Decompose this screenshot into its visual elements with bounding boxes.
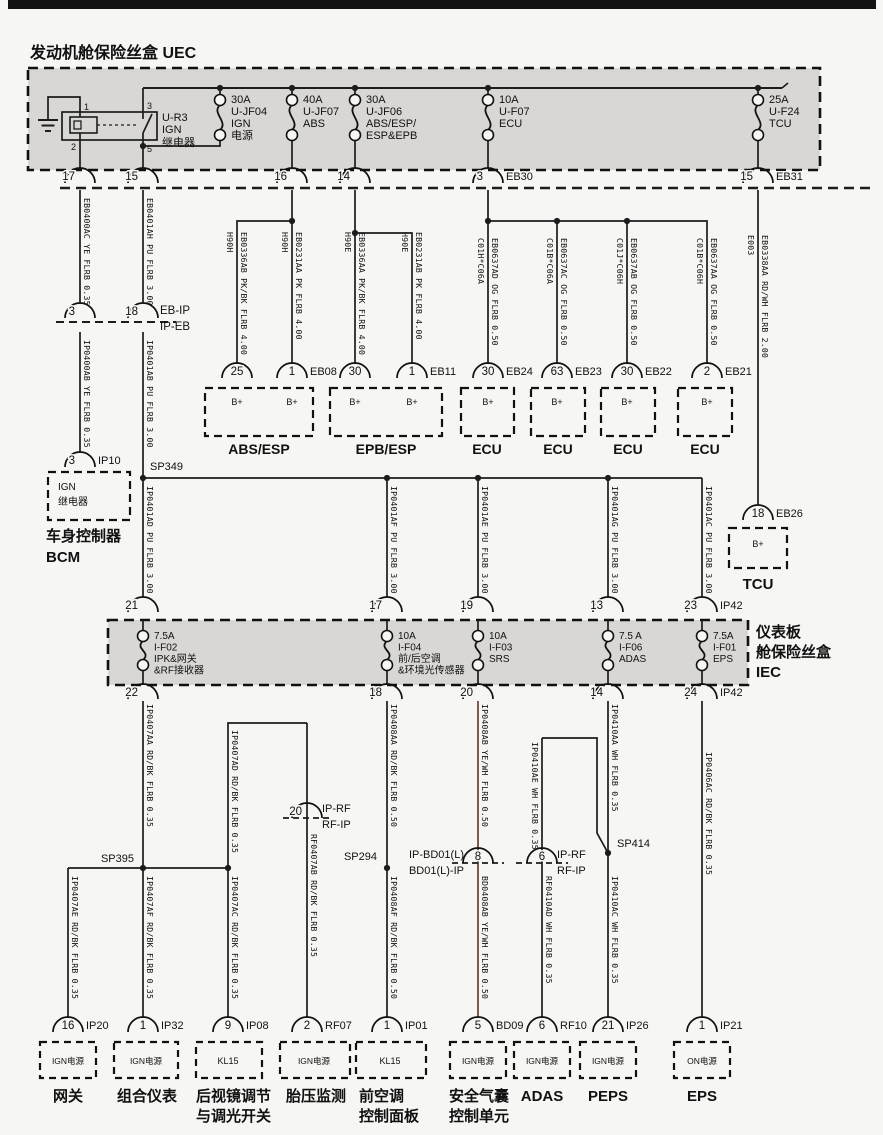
wire-code-label: EB0336AB PK/BK FLRB 4.00 — [239, 232, 249, 355]
connector-EB21: 2EB21 — [692, 363, 752, 378]
connector-EB26: 18EB26 — [743, 505, 803, 520]
wire-code-label: H90E — [343, 232, 353, 253]
wire-code-label: EB0231AA PK FLRB 4.00 — [294, 232, 304, 340]
harness-label: IP26 — [626, 1020, 649, 1032]
pin-number: 6 — [539, 851, 545, 863]
pin-number: 15 — [125, 171, 138, 183]
wire-code-label: IP0400AB YE FLRB 0.35 — [82, 340, 92, 448]
connector-EB31: 15EB31 — [740, 168, 803, 183]
tpms-inner: IGN电源 — [298, 1056, 331, 1066]
pin-number: 20 — [460, 687, 473, 699]
fuse-label: U-F07 — [499, 106, 530, 118]
wire-code-label: C01H*C06A — [476, 238, 486, 284]
harness-label: IP01 — [405, 1020, 428, 1032]
bplus: B+ — [621, 397, 632, 407]
relay-pin1: 1 — [84, 102, 89, 112]
pin-number: 17 — [369, 600, 382, 612]
abs-esp-box — [205, 388, 313, 436]
harness-label: BD09 — [496, 1020, 524, 1032]
pin-number: 24 — [684, 687, 697, 699]
fuse-label: &环境光传感器 — [398, 664, 465, 677]
fuse-label: 前/后空调 — [398, 652, 441, 665]
wire-code-label: IP0406AC RD/BK FLRB 0.35 — [704, 752, 714, 875]
wire-code-label: IP0407AD RD/BK FLRB 0.35 — [230, 730, 240, 853]
relay-pin5: 5 — [147, 144, 152, 154]
harness-label: EB24 — [506, 366, 533, 378]
fuse-label: &RF接收器 — [154, 664, 204, 677]
fuse-terminal — [603, 631, 614, 642]
mirror-caption2: 与调光开关 — [196, 1107, 271, 1125]
wire-code-label: C01B*C06H — [695, 238, 705, 284]
ac-caption1: 前空调 — [359, 1087, 404, 1105]
pin-number: 3 — [69, 306, 75, 318]
wire-code-label: EB0637AB OG FLRB 0.50 — [629, 238, 639, 346]
fuse-terminal — [473, 631, 484, 642]
wiring-diagram-page: 30AU-JF04IGN电源40AU-JF07ABS30AU-JF06ABS/E… — [0, 0, 883, 1135]
pin-number: 9 — [225, 1020, 231, 1032]
fuse-label: SRS — [489, 654, 510, 665]
pin-number: 6 — [539, 1020, 545, 1032]
wire-code-label: E003 — [746, 235, 756, 256]
wire-code-label: IP0401AC PU FLRB 3.00 — [704, 486, 714, 594]
connector-IP42: 23IP42 — [684, 597, 742, 612]
fuse-terminal — [287, 95, 298, 106]
fuse-label: 40A — [303, 94, 323, 106]
wire-code-label: IP0407AE RD/BK FLRB 0.35 — [70, 876, 80, 999]
fuse-label: 10A — [499, 94, 519, 106]
iprf20-label2: RF-IP — [322, 819, 351, 831]
connector-19: 19 — [460, 597, 493, 612]
wire-ip0410ae-branch — [542, 738, 608, 853]
mirror-caption1: 后视镜调节 — [196, 1087, 271, 1105]
pin-number: 1 — [384, 1020, 390, 1032]
wire-code-label: C01B*C06A — [545, 238, 555, 284]
pin-number: 1 — [699, 1020, 705, 1032]
iec-caption1: 仪表板 — [755, 623, 802, 641]
harness-label: IP32 — [161, 1020, 184, 1032]
junction-dot — [624, 218, 630, 224]
connector-RF10: 6RF10 — [527, 1017, 587, 1032]
bplus: B+ — [752, 539, 763, 549]
bplus: B+ — [551, 397, 562, 407]
junction-dot — [485, 85, 491, 91]
fuse-label: 7.5A — [154, 631, 175, 642]
bcm-caption1: 车身控制器 — [46, 527, 122, 545]
pin-number: 3 — [69, 455, 75, 467]
iprf6-label2: RF-IP — [557, 865, 586, 877]
connector-IP20: 16IP20 — [53, 1017, 109, 1032]
fuse-terminal — [215, 95, 226, 106]
pin-number: 2 — [704, 366, 710, 378]
bplus: B+ — [406, 397, 417, 407]
fuse-label: I-F02 — [154, 643, 178, 654]
adas-caption: ADAS — [521, 1088, 564, 1105]
wire-code-label: H90E — [400, 232, 410, 253]
connector-IP32: 1IP32 — [128, 1017, 184, 1032]
bd01-label2: BD01(L)-IP — [409, 865, 464, 877]
wire-code-label: EB0338AA RD/WH FLRB 2.00 — [760, 235, 770, 358]
gateway-caption: 网关 — [53, 1087, 83, 1105]
wire-code-label: IP0401AE PU FLRB 3.00 — [480, 486, 490, 594]
fuse-label: TCU — [769, 118, 792, 130]
sp349-label: SP349 — [150, 461, 183, 473]
tcu-caption: TCU — [743, 576, 774, 593]
wire-code-label: C01J*C06H — [615, 238, 625, 284]
eps-caption: EPS — [687, 1088, 717, 1105]
fuse-label: 25A — [769, 94, 789, 106]
wire-code-label: IP0407AA RD/BK FLRB 0.35 — [145, 704, 155, 827]
epb-esp-caption: EPB/ESP — [356, 441, 417, 457]
connector-30: 30 — [340, 363, 370, 378]
harness-label: IP10 — [98, 455, 121, 467]
wire-code-label: H90H — [225, 232, 235, 253]
pin-number: 5 — [475, 1020, 481, 1032]
harness-label: RF10 — [560, 1020, 587, 1032]
wire-code-label: EB0637AD OG FLRB 0.50 — [490, 238, 500, 346]
pin-number: 1 — [409, 366, 415, 378]
junction-dot — [605, 850, 611, 856]
pin-number: 14 — [590, 687, 603, 699]
sp414-label: SP414 — [617, 838, 650, 850]
pin-number: 63 — [551, 366, 564, 378]
pin-number: 30 — [349, 366, 362, 378]
ecu-caption: ECU — [690, 441, 720, 457]
wire-code-label: IP0407AF RD/BK FLRB 0.35 — [145, 876, 155, 999]
ac-inner: KL15 — [379, 1056, 400, 1066]
fuse-label: I-F04 — [398, 643, 422, 654]
bplus: B+ — [701, 397, 712, 407]
fuse-label: ECU — [499, 118, 522, 130]
pin-number: 1 — [140, 1020, 146, 1032]
fuse-terminal — [483, 95, 494, 106]
fuse-label: U-JF04 — [231, 106, 267, 118]
wire-code-label: IP0410AC WH FLRB 0.35 — [610, 876, 620, 984]
ecu-box-4 — [678, 388, 732, 436]
wire-code-label: EB0231AB PK FLRB 4.00 — [414, 232, 424, 340]
fuse-terminal — [483, 130, 494, 141]
harness-label: RF07 — [325, 1020, 352, 1032]
harness-label: IP42 — [720, 600, 743, 612]
connector-EB11: 1EB11 — [397, 363, 456, 378]
connector-EB24: 30EB24 — [473, 363, 533, 378]
airbag-inner: IGN电源 — [462, 1056, 495, 1066]
cluster-caption: 组合仪表 — [117, 1087, 178, 1105]
fuse-label: 30A — [366, 94, 386, 106]
harness-label: IP21 — [720, 1020, 743, 1032]
junction-dot — [554, 218, 560, 224]
relay-pin2: 2 — [71, 142, 76, 152]
fuse-terminal — [350, 95, 361, 106]
pin-number: 16 — [62, 1020, 75, 1032]
relay-name3: 继电器 — [162, 136, 195, 149]
abs-esp-caption: ABS/ESP — [228, 441, 289, 457]
junction-dot — [384, 865, 390, 871]
adas-inner: IGN电源 — [526, 1056, 559, 1066]
fuse-terminal — [350, 130, 361, 141]
connector-IP01: 1IP01 — [372, 1017, 428, 1032]
ecu-caption: ECU — [543, 441, 573, 457]
relay-name: U-R3 — [162, 112, 188, 124]
fuse-terminal — [603, 660, 614, 671]
iec-caption2: 舱保险丝盒 — [756, 643, 832, 661]
wire-code-label: RF0410AD WH FLRB 0.35 — [544, 876, 554, 984]
harness-label: EB23 — [575, 366, 602, 378]
relay-name2: IGN — [162, 124, 182, 136]
fuse-terminal — [287, 130, 298, 141]
wire-code-label: EB0637AA OG FLRB 0.50 — [709, 238, 719, 346]
cluster-inner: IGN电源 — [130, 1056, 163, 1066]
pin-number: 15 — [740, 171, 753, 183]
connector-21: 21 — [125, 597, 158, 612]
ecu-box-3 — [601, 388, 655, 436]
harness-label: EB11 — [430, 366, 456, 378]
fuse-label: U-JF07 — [303, 106, 339, 118]
pin-number: 1 — [289, 366, 295, 378]
fuse-label: IPK&网关 — [154, 652, 197, 665]
wire-code-label: IP0410AA WH FLRB 0.35 — [610, 704, 620, 812]
connector-6: 6 — [527, 848, 557, 863]
harness-label: EB08 — [310, 366, 337, 378]
connector-EB23: 63EB23 — [542, 363, 602, 378]
fuse-label: ESP&EPB — [366, 130, 417, 142]
connector-EB30: 3EB30 — [473, 168, 533, 183]
junction-dot — [217, 85, 223, 91]
wire-code-label: IP0408AB YE/WH FLRB 0.50 — [480, 704, 490, 827]
junction-dot — [475, 475, 481, 481]
fuse-i-f06: 7.5 AI-F06ADAS — [603, 631, 647, 671]
fuse-label: I-F06 — [619, 643, 643, 654]
junction-dot — [352, 85, 358, 91]
wire-code-label: IP0410AE WH FLRB 0.35 — [530, 742, 540, 850]
gateway-inner: IGN电源 — [52, 1056, 85, 1066]
wire-code-label: IP0401AF PU FLRB 3.00 — [389, 486, 399, 594]
connector-EB08: 1EB08 — [277, 363, 337, 378]
fuse-terminal — [138, 631, 149, 642]
iprf6-label1: IP-RF — [557, 849, 586, 861]
fuse-label: ADAS — [619, 654, 647, 665]
junction-dot — [605, 475, 611, 481]
peps-caption: PEPS — [588, 1088, 628, 1105]
fuse-label: ABS — [303, 118, 325, 130]
wire-code-label: IP0408AA RD/BK FLRB 0.50 — [389, 704, 399, 827]
pin-number: 18 — [125, 306, 138, 318]
connector-18: 18 — [369, 684, 402, 699]
wire-code-label: BD0408AB YE/WH FLRB 0.50 — [480, 876, 490, 999]
fuse-terminal — [382, 660, 393, 671]
bcm-inner2: 继电器 — [58, 495, 88, 508]
pin-number: 18 — [369, 687, 382, 699]
harness-label: IP08 — [246, 1020, 269, 1032]
fuse-label: I-F03 — [489, 643, 513, 654]
ecu-box-2 — [531, 388, 585, 436]
ecu-box-1 — [461, 388, 514, 436]
harness-label: EB31 — [776, 171, 803, 183]
junction-dot — [289, 218, 295, 224]
junction-dot — [140, 865, 146, 871]
ecu-caption: ECU — [613, 441, 643, 457]
airbag-caption2: 控制单元 — [449, 1107, 509, 1125]
top-black-bar — [8, 0, 876, 9]
pin-number: 16 — [274, 171, 287, 183]
mirror-inner: KL15 — [217, 1056, 238, 1066]
pin-number: 20 — [289, 806, 302, 818]
relay-pin3: 3 — [147, 101, 152, 111]
connector-13: 13 — [590, 597, 623, 612]
connector-IP08: 9IP08 — [213, 1017, 269, 1032]
ebip-label2: IP-EB — [160, 321, 190, 333]
airbag-caption1: 安全气囊 — [449, 1087, 510, 1105]
bcm-box — [48, 472, 130, 520]
pin-number: 17 — [62, 171, 75, 183]
wire-code-label: H90H — [280, 232, 290, 253]
fuse-terminal — [697, 631, 708, 642]
harness-label: IP20 — [86, 1020, 109, 1032]
fuse-label: 10A — [489, 631, 507, 642]
pin-number: 30 — [621, 366, 634, 378]
wire-code-label: EB0401AH PU FLRB 3.00 — [145, 198, 155, 306]
connector-IP26: 21IP26 — [593, 1017, 649, 1032]
pin-number: 23 — [684, 600, 697, 612]
junction-dot — [140, 475, 146, 481]
ac-caption2: 控制面板 — [359, 1107, 420, 1125]
pin-number: 19 — [460, 600, 473, 612]
fuse-label: ABS/ESP/ — [366, 118, 417, 130]
pin-number: 18 — [752, 508, 765, 520]
wire-code-label: IP0401AD PU FLRB 3.00 — [145, 486, 155, 594]
bcm-inner1: IGN — [58, 482, 76, 493]
bplus: B+ — [482, 397, 493, 407]
pin-number: 13 — [590, 600, 603, 612]
bcm-caption2: BCM — [46, 549, 80, 566]
pin-number: 8 — [475, 851, 481, 863]
pin-number: 2 — [304, 1020, 310, 1032]
pin-number: 3 — [477, 171, 483, 183]
connector-25: 25 — [222, 363, 252, 378]
junction-dot — [225, 865, 231, 871]
eps-inner: ON电源 — [687, 1056, 717, 1066]
connector-IP10: 3IP10 — [65, 452, 121, 467]
wire-code-label: IP0401AG PU FLRB 3.00 — [610, 486, 620, 594]
harness-label: IP42 — [720, 687, 743, 699]
iprf20-label1: IP-RF — [322, 803, 351, 815]
fuse-label: EPS — [713, 654, 733, 665]
fuse-label: U-F24 — [769, 106, 800, 118]
junction-dot — [384, 475, 390, 481]
wire-code-label: EB0336AA PK/BK FLRB 4.00 — [357, 232, 367, 355]
harness-label: EB22 — [645, 366, 672, 378]
junction-dot — [485, 218, 491, 224]
fuse-terminal — [753, 95, 764, 106]
junction-dot — [140, 143, 146, 149]
tpms-caption: 胎压监测 — [286, 1087, 346, 1105]
pin-number: 25 — [231, 366, 244, 378]
fuse-label: 10A — [398, 631, 416, 642]
pin-number: 14 — [337, 171, 350, 183]
wire-code-label: EB0400AC YE FLRB 0.35 — [82, 198, 92, 306]
uec-fuse-box — [28, 68, 820, 170]
connector-BD09: 5BD09 — [463, 1017, 524, 1032]
connector-20: 20 — [289, 803, 322, 818]
fuse-label: IGN — [231, 118, 251, 130]
wire-code-label: RF0407AB RD/BK FLRB 0.35 — [309, 834, 319, 957]
connector-8: 8 — [463, 848, 493, 863]
fuse-terminal — [138, 660, 149, 671]
fuse-label: 7.5A — [713, 631, 734, 642]
wire-code-label: EB0637AC OG FLRB 0.50 — [559, 238, 569, 346]
fuse-label: 电源 — [231, 128, 253, 142]
harness-label: EB30 — [506, 171, 533, 183]
ecu-caption: ECU — [472, 441, 502, 457]
connector-IP21: 1IP21 — [687, 1017, 743, 1032]
connector-EB22: 30EB22 — [612, 363, 672, 378]
connector-17: 17 — [369, 597, 402, 612]
ebip-label1: EB-IP — [160, 305, 190, 317]
schematic-svg: 30AU-JF04IGN电源40AU-JF07ABS30AU-JF06ABS/E… — [0, 0, 883, 1135]
wire-code-label: IP0407AC RD/BK FLRB 0.35 — [230, 876, 240, 999]
sp395-label: SP395 — [101, 853, 134, 865]
ecu-bus — [488, 221, 707, 364]
junction-dot — [755, 85, 761, 91]
junction-dot — [289, 85, 295, 91]
fuse-label: 30A — [231, 94, 251, 106]
bplus: B+ — [231, 397, 242, 407]
connector-RF07: 2RF07 — [292, 1017, 352, 1032]
pin-number: 22 — [125, 687, 138, 699]
harness-label: EB26 — [776, 508, 803, 520]
bplus: B+ — [286, 397, 297, 407]
fuse-terminal — [215, 130, 226, 141]
fuse-terminal — [382, 631, 393, 642]
sp294-label: SP294 — [344, 851, 377, 863]
bplus: B+ — [349, 397, 360, 407]
wire-code-label: IP0401AB PU FLRB 3.00 — [145, 340, 155, 448]
bd01-label1: IP-BD01(L) — [409, 849, 464, 861]
fuse-label: U-JF06 — [366, 106, 402, 118]
fuse-i-f01: 7.5AI-F01EPS — [697, 631, 737, 671]
fuse-label: 7.5 A — [619, 631, 642, 642]
epb-esp-box — [330, 388, 442, 436]
pin-number: 21 — [602, 1020, 615, 1032]
peps-inner: IGN电源 — [592, 1056, 625, 1066]
uec-title: 发动机舱保险丝盒 UEC — [29, 43, 197, 62]
fuse-i-f03: 10AI-F03SRS — [473, 631, 513, 671]
iec-caption3: IEC — [756, 664, 781, 681]
fuse-label: I-F01 — [713, 643, 737, 654]
harness-label: EB21 — [725, 366, 752, 378]
pin-number: 30 — [482, 366, 495, 378]
fuse-terminal — [697, 660, 708, 671]
pin-number: 21 — [125, 600, 138, 612]
wire-code-label: IP0408AF RD/BK FLRB 0.50 — [389, 876, 399, 999]
fuse-terminal — [753, 130, 764, 141]
fuse-terminal — [473, 660, 484, 671]
